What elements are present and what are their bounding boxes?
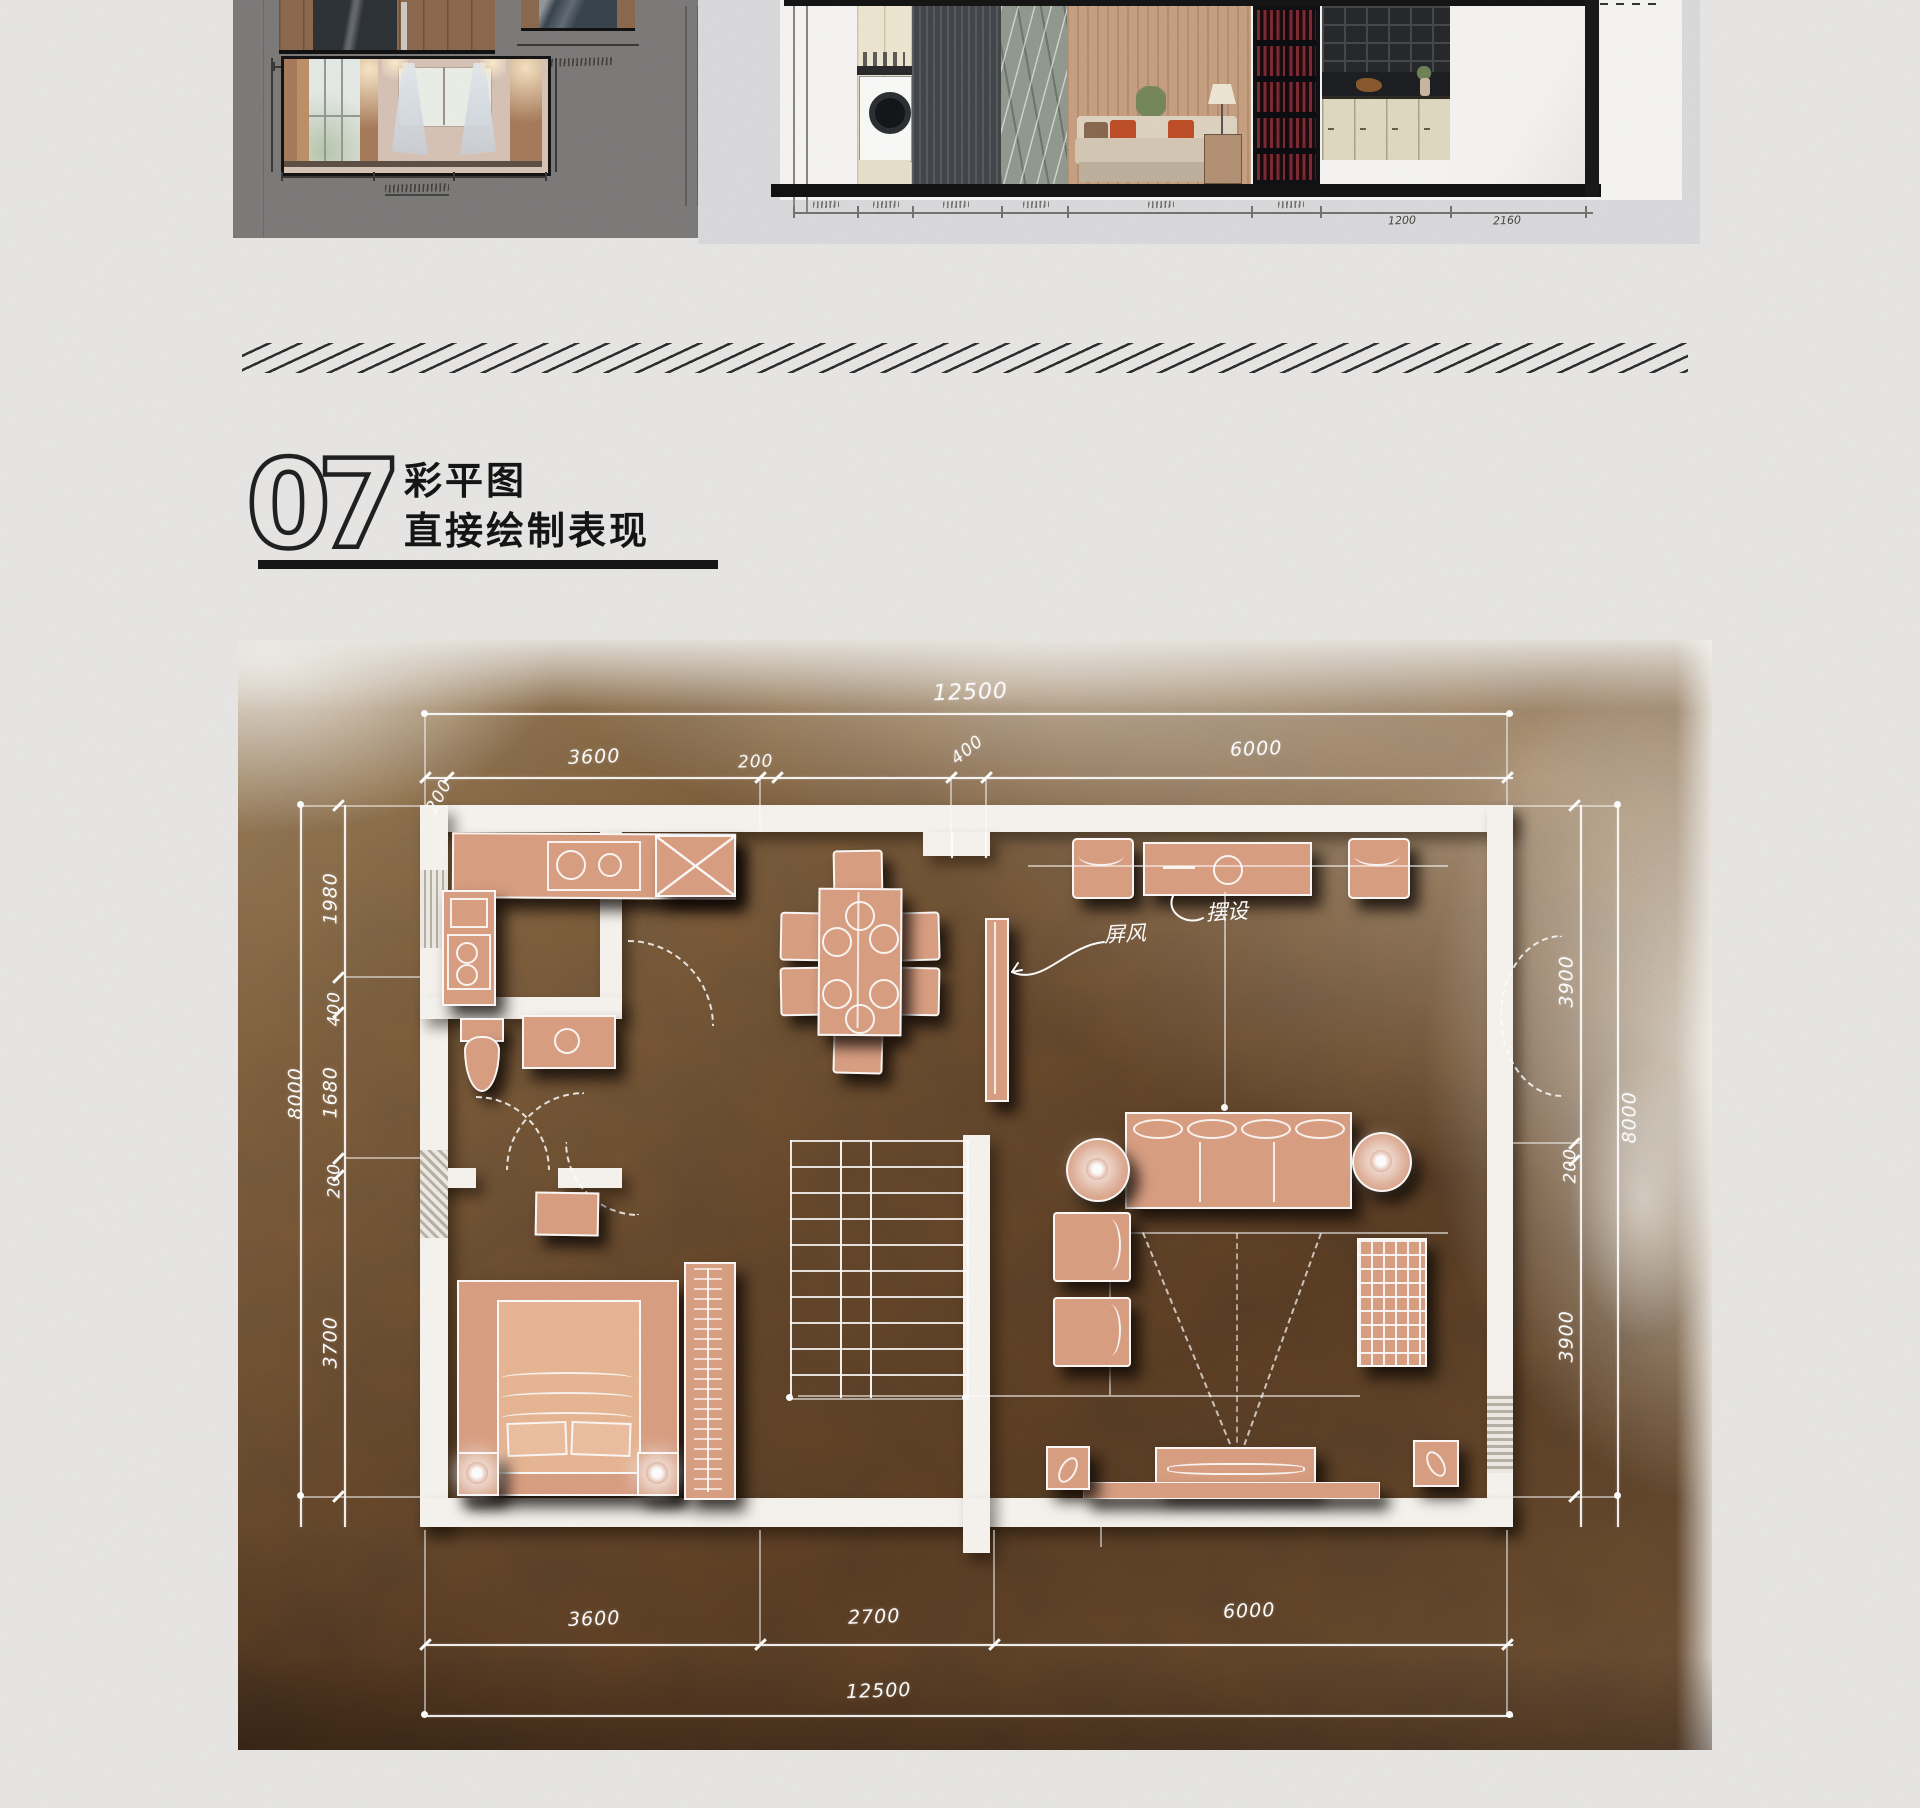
dim-ext-line [950, 777, 952, 832]
dim-label: 3900 [1558, 938, 1577, 1008]
annotation-arrow [1008, 930, 1118, 985]
nightstand-left [457, 1452, 499, 1496]
dim-label: 1680 [322, 1049, 341, 1119]
dim-ext-line [1513, 1142, 1580, 1144]
dim-ext-line [300, 805, 420, 807]
slat-wall [912, 6, 1001, 184]
lamp-glow [1370, 1150, 1392, 1172]
section-beam [521, 28, 635, 31]
window-mullion [443, 67, 445, 125]
sofa [1125, 1112, 1352, 1209]
dim-line-bottom-overall [425, 1715, 1513, 1717]
tv-console [1083, 1482, 1380, 1499]
dining-plate [822, 927, 852, 957]
wardrobe-elevation-partial [279, 0, 495, 53]
elevation-label-scribble [543, 57, 613, 67]
washer-base-cabinet [859, 160, 910, 184]
glass-mullion [309, 115, 360, 117]
lamp-glow [1086, 1158, 1108, 1180]
dim-ext-line [1506, 715, 1508, 805]
artwork-panel [539, 0, 617, 28]
console-table [1143, 842, 1312, 896]
sofa-back-cushion [1187, 1119, 1237, 1139]
dim-scribble [943, 201, 969, 209]
side-table-left [1066, 1138, 1130, 1202]
window-zigzag [420, 1150, 448, 1238]
chair-back-curve [1354, 844, 1400, 866]
section-title-line2: 直接绘制表现 [404, 512, 650, 550]
dim-scribble [813, 201, 839, 209]
dim-line-top-overall [425, 713, 1513, 715]
dim-tick [1585, 206, 1587, 218]
blanket-line [501, 1372, 633, 1384]
seat-divider [1273, 1142, 1275, 1202]
hanger-marks [694, 1268, 722, 1492]
dim-tick [1251, 206, 1253, 218]
section-beam [279, 50, 495, 54]
wall-top [425, 805, 1512, 832]
wine-divider [1285, 10, 1288, 180]
dining-plate [845, 901, 875, 931]
dim-label-bottom-overall: 12500 [846, 1681, 912, 1702]
nightstand-right [637, 1452, 679, 1496]
pillow [506, 1421, 567, 1457]
section-column-right [1585, 0, 1599, 197]
dim-label: 200 [738, 753, 774, 771]
dim-tick [1320, 206, 1322, 218]
glass-grid-cabinet [1322, 6, 1450, 72]
dim-ext-line [985, 777, 987, 832]
rug [1357, 1238, 1427, 1367]
downlight-glow [382, 59, 408, 87]
fridge [655, 835, 736, 897]
dim-label: 3600 [568, 747, 621, 768]
wardrobe-glass-door [313, 0, 397, 50]
armchair-top-right [1348, 838, 1410, 899]
dim-tick [453, 172, 455, 181]
console-decor [1213, 855, 1243, 885]
dim-ext-line [300, 1496, 420, 1498]
glass-mullion [324, 59, 326, 167]
elevation-dim-line [281, 176, 547, 178]
wall-stub-top [923, 832, 990, 856]
vanity-sink [554, 1028, 580, 1054]
dim-scribble [1148, 201, 1174, 209]
prep-sink [450, 898, 488, 928]
tv-center-line [1236, 1233, 1238, 1463]
dim-ext-line [1513, 805, 1617, 807]
sofa-back-cushion [1295, 1119, 1345, 1139]
side-cabinet [1204, 134, 1242, 184]
sketch-line [1224, 892, 1226, 1106]
wardrobe [684, 1262, 736, 1500]
dim-label-top-overall: 12500 [933, 681, 1009, 706]
wood-pilaster [297, 59, 309, 167]
wood-pillar [360, 59, 378, 167]
glass-mullion [341, 59, 343, 167]
elevation-panel-light: 1200 2160 [698, 0, 1700, 244]
dim-ext-line [424, 1530, 426, 1715]
shelf-band [857, 66, 912, 75]
dim-tick [857, 206, 859, 218]
section-beam-bottom [771, 184, 1601, 197]
stair-base-line [790, 1398, 967, 1400]
sketch-line [798, 1395, 1360, 1397]
dim-ext-line [344, 1157, 420, 1159]
plant-pot-left [1046, 1446, 1090, 1490]
drafting-line [263, 0, 264, 238]
dim-scribble [873, 201, 899, 209]
dim-ext-line [344, 976, 420, 978]
wood-pilaster [284, 59, 297, 167]
armchair-top-left [1072, 838, 1134, 899]
floor-lamp-pole [1221, 104, 1223, 134]
white-wall [1450, 6, 1585, 184]
bronze-decor [1356, 78, 1382, 92]
screen-partition [985, 918, 1009, 1102]
armchair-single-1 [1053, 1212, 1131, 1282]
plant-leaf [1054, 1454, 1082, 1486]
hatch-divider [242, 343, 1688, 373]
dining-plate [845, 1004, 875, 1034]
tv-screen-line [1167, 1463, 1305, 1475]
annotation-screen: 屏风 [1103, 923, 1146, 946]
elevation-dim-line [555, 58, 557, 172]
plant-pot-right [1413, 1440, 1459, 1487]
blanket-line [501, 1392, 633, 1404]
threshold-tick [985, 832, 987, 858]
section-title-line1: 彩平图 [404, 462, 527, 500]
dim-label: 3700 [322, 1299, 341, 1369]
dim-tick [273, 62, 275, 71]
dim-label: 200 [1563, 1114, 1580, 1184]
stair-stringer [840, 1140, 872, 1398]
chair-back-curve [1099, 1304, 1121, 1356]
sink-bowl [598, 853, 622, 877]
dim-label-right-overall: 8000 [1621, 1064, 1640, 1144]
dim-label: 1200 [1388, 214, 1416, 228]
dim-scribble [1278, 201, 1304, 209]
dim-ext-line [993, 1530, 995, 1644]
sofa-back-cushion [1241, 1119, 1291, 1139]
dining-chair [896, 967, 941, 1017]
dim-label: 6000 [1230, 739, 1283, 760]
mattress [497, 1300, 641, 1474]
artwork-elevation-partial [521, 0, 635, 30]
dim-label: 1980 [322, 855, 341, 925]
elevation-panel-gray [233, 0, 698, 238]
annotation-console: 摆设 [1205, 901, 1248, 924]
line-dot [1221, 1104, 1228, 1111]
bedroom-bench [535, 1191, 600, 1236]
downlight-glow [480, 59, 506, 87]
drafting-line [685, 6, 687, 206]
dim-tick [1001, 206, 1003, 218]
armchair-single-2 [1053, 1297, 1131, 1367]
dim-label: 3900 [1558, 1293, 1577, 1363]
dim-ext-line [1513, 1496, 1617, 1498]
burner [456, 964, 478, 986]
threshold-tick [951, 832, 953, 858]
dim-tick [1450, 206, 1452, 218]
lamp-glow [466, 1462, 488, 1484]
dim-ext-line [759, 777, 761, 832]
dim-tick [912, 206, 914, 218]
glass-door [309, 59, 360, 167]
pillow [570, 1421, 631, 1457]
dim-line-top-segments [425, 777, 1513, 779]
chair-back-curve [1078, 844, 1124, 866]
window-elevation [281, 56, 551, 176]
dim-label: 200 [327, 1129, 344, 1199]
dash-marks [1600, 3, 1656, 5]
wardrobe-panel-slit [401, 2, 407, 50]
dim-label: 400 [327, 957, 344, 1027]
label-underline [385, 194, 449, 196]
section-number: 07 [246, 444, 388, 566]
dim-label-left-overall: 8000 [287, 1040, 306, 1120]
burner [456, 942, 478, 964]
dim-tick [373, 172, 375, 181]
plant-leaf [1422, 1448, 1450, 1480]
title-underline [258, 560, 718, 569]
dim-ext-line [759, 1530, 761, 1644]
dim-tick [793, 206, 795, 218]
elevation-label-scribble [385, 183, 449, 193]
dining-plate [869, 979, 899, 1009]
sink-bowl [556, 850, 586, 880]
cabinet-handles [1328, 128, 1444, 130]
side-table-right [1352, 1132, 1412, 1192]
elevation-dim-line [517, 44, 639, 46]
dim-label: 2160 [1493, 214, 1521, 228]
wall-corridor-stub [963, 1498, 990, 1553]
sketch-line [1028, 865, 1448, 867]
lamp-glow [646, 1462, 668, 1484]
shelf-jars [863, 52, 905, 66]
chair-back-curve [1099, 1219, 1121, 1271]
dim-tick [281, 172, 283, 181]
elevation-dim-line [271, 58, 273, 172]
window-band [1487, 1395, 1513, 1473]
dim-tick [545, 172, 547, 181]
bottom-vignette [238, 1655, 1712, 1750]
dim-scribble [1023, 201, 1049, 209]
sofa-back-cushion [1133, 1119, 1183, 1139]
dining-plate [869, 924, 899, 954]
seat-divider [1199, 1142, 1201, 1202]
dining-plate [822, 979, 852, 1009]
drafting-line [793, 6, 795, 212]
dim-label: 2700 [848, 1607, 901, 1628]
dim-label: 6000 [1223, 1601, 1276, 1622]
stairs [790, 1140, 969, 1398]
dim-line-left-overall [300, 805, 302, 1527]
poster-page: 1200 2160 07 彩平图 直接绘制表现 [0, 0, 1920, 1808]
line-dot [786, 1394, 793, 1401]
screen-center-line [994, 922, 996, 1094]
dim-ext-line [1506, 1530, 1508, 1715]
dim-ext-line [424, 715, 426, 805]
dim-line-bottom-segments [425, 1644, 1513, 1646]
floor-strip [284, 161, 542, 167]
threshold-tick [1100, 1527, 1102, 1547]
vase [1420, 78, 1430, 96]
dim-line-right-overall [1617, 805, 1619, 1527]
dim-label: 3600 [568, 1609, 621, 1630]
dim-tick [1067, 206, 1069, 218]
washer-door [869, 92, 911, 134]
wood-pilaster [510, 59, 542, 167]
drafting-line [806, 6, 808, 212]
marble-panel [1001, 6, 1067, 184]
floor-plan: 屏风 摆设 [238, 640, 1712, 1750]
